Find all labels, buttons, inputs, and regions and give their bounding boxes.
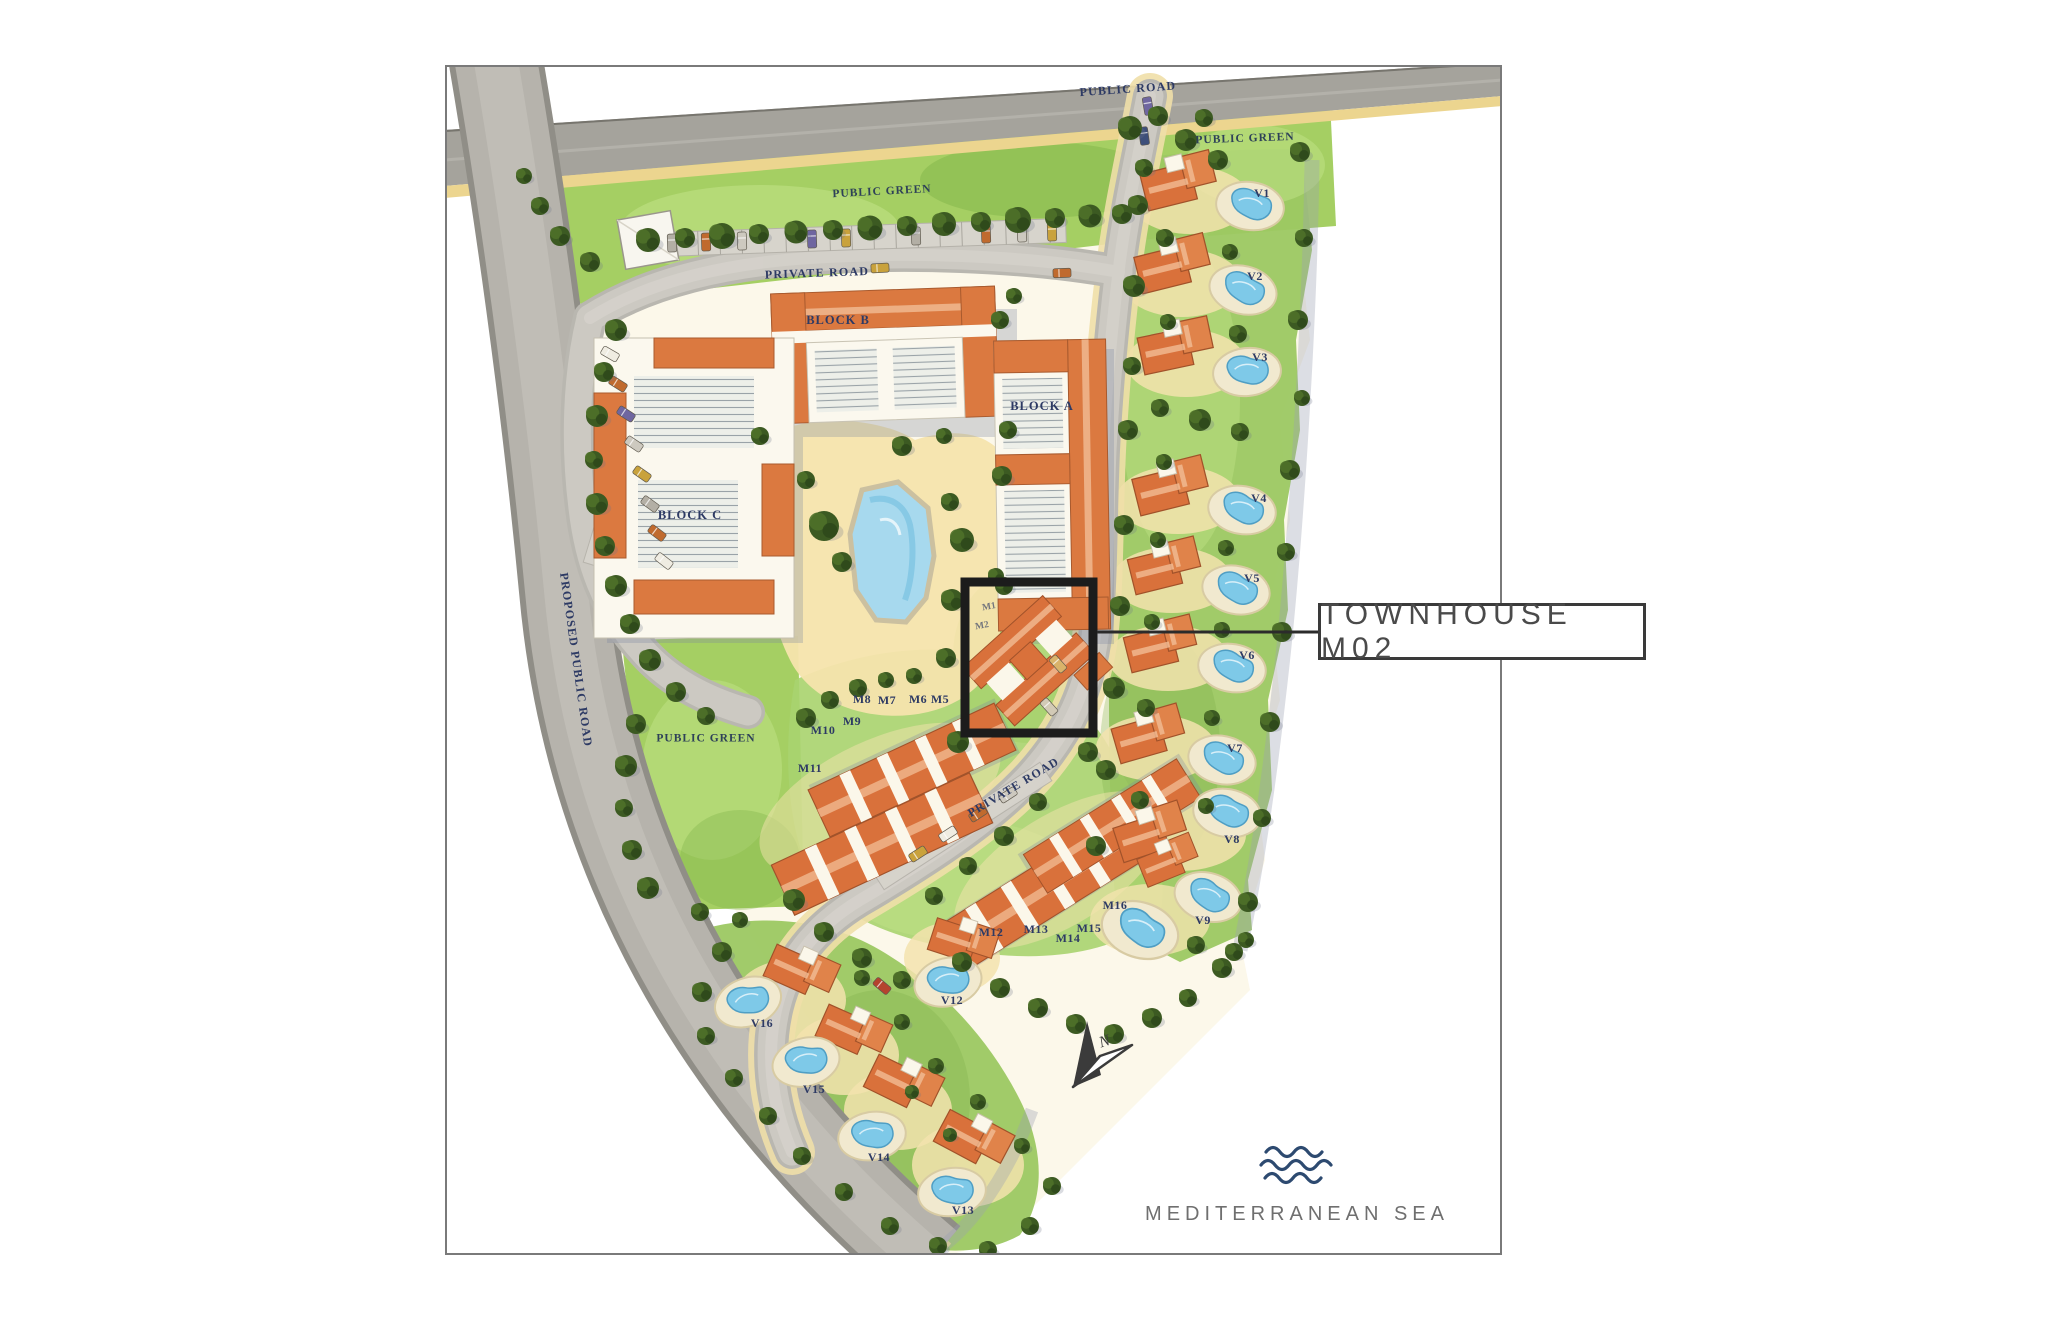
map-label-block-c: BLOCK C bbox=[658, 508, 722, 522]
townhouse-callout-label: TOWNHOUSE M02 bbox=[1321, 598, 1643, 666]
map-label-v4: V4 bbox=[1251, 491, 1267, 505]
map-label-m15: M15 bbox=[1077, 921, 1102, 935]
map-label-v1: V1 bbox=[1254, 186, 1270, 200]
map-label-v5: V5 bbox=[1244, 571, 1260, 585]
map-label-v7: V7 bbox=[1227, 741, 1243, 755]
map-label-m6: M6 bbox=[909, 692, 927, 706]
map-label-v14: V14 bbox=[868, 1150, 890, 1164]
map-label-m7: M7 bbox=[878, 693, 896, 707]
map-label-m9: M9 bbox=[843, 714, 861, 728]
central-pool bbox=[850, 482, 934, 622]
map-label-m10: M10 bbox=[811, 723, 836, 737]
map-label-m8: M8 bbox=[853, 692, 871, 706]
map-label-block-a: BLOCK A bbox=[1010, 399, 1074, 413]
site-plan-page: PUBLIC ROADPUBLIC GREENPUBLIC GREENPRIVA… bbox=[0, 0, 2048, 1323]
map-label-v2: V2 bbox=[1247, 269, 1263, 283]
sea-label: MEDITERRANEAN SEA bbox=[1097, 1203, 1497, 1226]
site-plan-svg: PUBLIC ROADPUBLIC GREENPUBLIC GREENPRIVA… bbox=[0, 0, 2048, 1323]
map-label-v15: V15 bbox=[803, 1082, 825, 1096]
map-label-v9: V9 bbox=[1195, 913, 1211, 927]
block-b-building bbox=[771, 286, 999, 424]
map-label-m12: M12 bbox=[979, 925, 1004, 939]
waves-icon bbox=[1261, 1148, 1331, 1183]
map-label-m16: M16 bbox=[1103, 898, 1128, 912]
map-label-public-green-west: PUBLIC GREEN bbox=[656, 733, 755, 745]
map-label-v16: V16 bbox=[751, 1016, 773, 1030]
map-label-v3: V3 bbox=[1252, 350, 1268, 364]
map-label-m5: M5 bbox=[931, 692, 949, 706]
map-label-v12: V12 bbox=[941, 993, 963, 1007]
townhouse-callout-box: TOWNHOUSE M02 bbox=[1318, 603, 1646, 660]
map-label-v13: V13 bbox=[952, 1203, 974, 1217]
map-label-v8: V8 bbox=[1224, 832, 1240, 846]
map-label-block-b: BLOCK B bbox=[806, 313, 870, 327]
map-label-m13: M13 bbox=[1024, 922, 1049, 936]
map-label-v6: V6 bbox=[1239, 648, 1255, 662]
map-label-m11: M11 bbox=[798, 761, 822, 775]
